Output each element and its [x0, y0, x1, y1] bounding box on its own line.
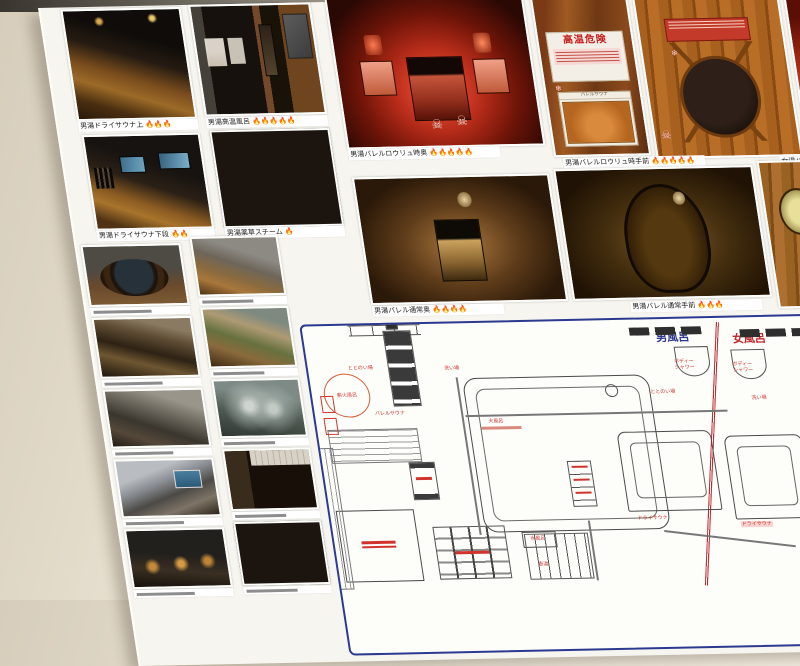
photo-danger-sign: 高温危険 バレルサウナ ❄ ❄: [528, 0, 651, 157]
dry-sauna-room-mens: [616, 430, 722, 512]
totonoi-area-label-right: ととのい場: [650, 389, 676, 396]
caption-small: [90, 306, 191, 316]
photo-barrel-door: ☠ ❄ ❄: [630, 0, 800, 159]
high-temp-danger-sign: 高温危険: [546, 31, 630, 82]
sauna-info-poster: 男湯ドライサウナ上 🔥🔥🔥 男湯高温風呂 🔥🔥🔥🔥🔥 男湯ドライサウナ下段 🔥🔥…: [38, 0, 800, 666]
wall-strip-shape: [739, 328, 800, 338]
barrel-doorway-shape: [616, 184, 717, 294]
tile-wall-shape: [249, 449, 310, 465]
wall-strip-shape: [629, 326, 702, 335]
sauna-lamp-shape: [457, 192, 473, 207]
skull-doodle-icon: ☠: [455, 115, 469, 128]
caption-small: [231, 510, 320, 520]
red-lamp-shape: [472, 32, 493, 53]
corridor-line: [664, 530, 795, 547]
notice-sheet-shape: [205, 39, 228, 67]
caption-small: [122, 517, 223, 527]
shower-stalls-shape: [432, 525, 512, 579]
photo-jacuzzi-bath: [211, 378, 308, 439]
snowflake-doodle-icon: ❄: [687, 0, 697, 4]
skull-doodle-icon: ☠: [430, 119, 444, 132]
wood-fired-bath-label: 薪火風呂: [337, 392, 358, 398]
sauna-stove-shape: [434, 219, 488, 281]
dry-sauna-label-mens: ドライサウナ: [637, 515, 668, 522]
photo-dark-tile-bath: [222, 447, 319, 511]
photo-steam-room: [189, 235, 286, 297]
caption-barrel-normal-back: 男湯バレル通常奥 🔥🔥🔥🔥: [371, 303, 505, 317]
caption-small: [210, 368, 299, 378]
totonoi-area-label: ととのい場: [347, 365, 373, 372]
info-card-diagram: [562, 101, 635, 144]
snowflake-doodle-icon: ❄: [554, 82, 563, 95]
red-outline-box: [323, 418, 339, 435]
main-bath-label: 大風呂: [488, 418, 504, 424]
caption-small: [199, 296, 288, 306]
wall-panel-shape: [281, 13, 313, 59]
caption-small: [243, 585, 332, 595]
photo-pot-bath: [80, 243, 189, 307]
skull-doodle-icon: ☠: [660, 129, 673, 142]
caption-small: [101, 378, 202, 388]
info-card-header: バレルサウナ: [559, 92, 631, 100]
photo-dry-sauna-lower: [82, 133, 215, 231]
photo-barrel-loyly-back: ☠ ☠: [324, 0, 545, 150]
dry-sauna-label-womens: ドライサウナ: [740, 521, 773, 528]
photo-high-temp-bath: [188, 2, 327, 116]
notice-sheet-shape: [227, 38, 246, 64]
photo-dining-area: [233, 520, 331, 586]
barrel-sauna-info-card: バレルサウナ: [558, 91, 639, 147]
wall-poster-shape: [173, 470, 203, 489]
barrel-sauna-topview-shape: [385, 321, 398, 330]
barrel-sauna-label: バレルサウナ: [374, 410, 405, 417]
danger-sign-bodytext: [553, 48, 622, 65]
photo-barrel-normal-front: [553, 165, 772, 301]
red-outline-box: [320, 396, 336, 413]
sauna-door-glass-shape: [258, 25, 278, 77]
glowing-window-shape: [775, 188, 800, 236]
tv-screen-shape: [119, 156, 146, 173]
caption-small: [112, 447, 213, 457]
photo-indoor-bath: [91, 316, 200, 379]
steam-booth-shape: [408, 462, 440, 500]
washing-area-label: 洗い場: [444, 365, 460, 371]
photo-rock-bath: [102, 388, 211, 449]
stove-grate-shape: [93, 168, 114, 189]
caption-small: [133, 588, 234, 598]
body-shower-label-mens: ボディー シャワー: [673, 358, 695, 370]
photo-stair-area: [113, 457, 222, 518]
dry-sauna-benches-outline: [736, 445, 799, 506]
sauna-stove-shape: [405, 56, 471, 121]
danger-sign-title: 高温危険: [562, 34, 608, 47]
caption-barrel-loyly-back: 男湯バレルロウリュ時奥 🔥🔥🔥🔥🔥: [348, 146, 502, 160]
shower-stalls-shape: [524, 533, 595, 580]
barrel-sauna-topview-shape: [382, 330, 422, 406]
round-tub-shape: [98, 258, 171, 296]
dry-sauna-benches-outline: [629, 441, 708, 498]
sauna-window-shape: [359, 61, 397, 96]
sauna-window-shape: [472, 58, 510, 93]
caption-small: [220, 437, 309, 447]
photo-dry-sauna-upper: [60, 7, 197, 121]
bench-hatch-area: [327, 428, 422, 464]
body-shower-label-womens: ボディー シャワー: [732, 361, 754, 373]
dry-sauna-room-womens: [723, 434, 800, 519]
washing-area-label-right: 洗い場: [751, 395, 767, 401]
photo-barrel-normal-back: [352, 173, 568, 305]
red-lamp-shape: [363, 34, 384, 55]
tv-screen-shape: [157, 151, 191, 169]
warning-sticker-shape: [663, 18, 751, 42]
caption-barrel-normal-front: 男湯バレル通常手前 🔥🔥🔥: [630, 299, 764, 313]
photo-outdoor-bath: [200, 306, 297, 369]
room-label-blur: [361, 539, 397, 551]
caption-dry-sauna-upper: 男湯ドライサウナ上 🔥🔥🔥: [77, 119, 199, 132]
snowflake-doodle-icon: ❄: [563, 0, 573, 5]
caption-high-temp-bath: 男湯高温風呂 🔥🔥🔥🔥🔥: [205, 115, 329, 129]
photo-rest-lounge: [124, 527, 233, 589]
photo-herb-steam: [209, 128, 344, 228]
bathhouse-floor-plan: 男風呂 女風呂 薪火風呂 バレルサウナ ととのい場 洗い場 大風呂 水風呂 壺湯: [299, 312, 800, 655]
